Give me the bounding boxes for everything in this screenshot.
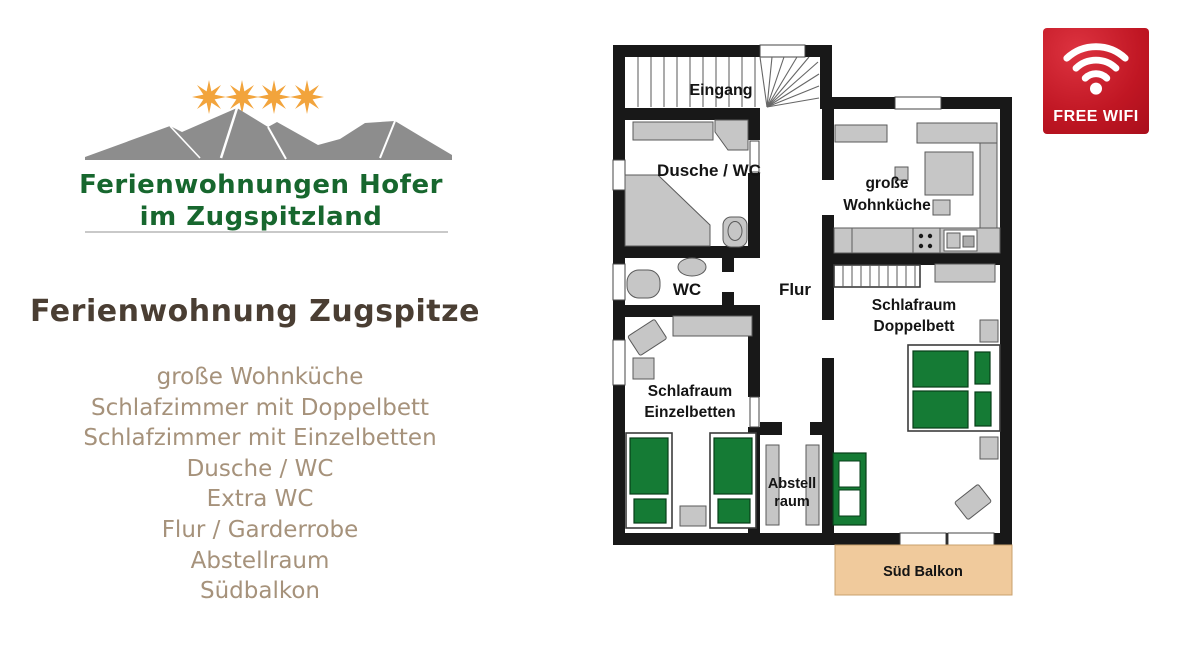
stove-burner <box>919 244 923 248</box>
room-label-flur: Flur <box>779 280 811 299</box>
feature-item: Dusche / WC <box>10 454 510 485</box>
pillow <box>975 352 990 384</box>
feature-item: Flur / Garderrobe <box>10 515 510 546</box>
room-label-einzelbetten-1: Schlafraum <box>648 383 732 400</box>
sofa-cushion <box>839 461 860 487</box>
room-label-einzelbetten-2: Einzelbetten <box>644 404 735 421</box>
sideboard <box>835 125 887 142</box>
bath-window <box>613 160 625 190</box>
mattress <box>913 351 968 387</box>
bathroom-fixtures <box>625 120 748 247</box>
feature-item: Schlafzimmer mit Doppelbett <box>10 393 510 424</box>
stove-burner <box>928 234 932 238</box>
wifi-icon <box>1056 37 1136 101</box>
mattress <box>630 438 668 494</box>
page-title: Ferienwohnung Zugspitze <box>10 294 500 329</box>
sink <box>627 270 660 298</box>
wc-window <box>613 264 625 300</box>
mountains-icon <box>80 104 455 168</box>
nightstand <box>680 506 706 526</box>
room-label-kueche-1: große <box>865 175 908 192</box>
chair <box>954 484 991 520</box>
feature-item: Abstellraum <box>10 546 510 577</box>
cabinet <box>935 264 995 282</box>
balcony-door <box>900 533 946 545</box>
table <box>925 152 973 195</box>
room-label-eingang: Eingang <box>689 82 752 99</box>
wardrobe <box>834 265 920 287</box>
logo-line2: im Zugspitzland <box>75 202 447 232</box>
kitchen-window <box>895 97 941 109</box>
sofa-cushion <box>839 490 860 516</box>
pillow <box>975 392 991 426</box>
pillow <box>634 499 666 523</box>
mattress <box>714 438 752 494</box>
balcony-door <box>948 533 994 545</box>
feature-item: Schlafzimmer mit Einzelbetten <box>10 423 510 454</box>
room-label-dusche-wc: Dusche / WC <box>657 161 761 180</box>
dresser <box>673 316 752 336</box>
bedroom-window <box>613 340 625 385</box>
bench <box>917 123 997 143</box>
logo-line1: Ferienwohnungen Hofer <box>75 170 447 200</box>
feature-list: große Wohnküche Schlafzimmer mit Doppelb… <box>10 362 510 607</box>
single-bedroom-fixtures <box>626 316 756 528</box>
room-label-kueche-2: Wohnküche <box>843 197 931 214</box>
mattress <box>913 391 968 428</box>
shower <box>625 175 710 246</box>
stove-burner <box>928 244 932 248</box>
room-label-balkon: Süd Balkon <box>883 564 963 580</box>
feature-item: große Wohnküche <box>10 362 510 393</box>
room-label-abstellraum-1: Abstell <box>768 476 816 492</box>
door-leaf <box>750 397 759 427</box>
bath-counter <box>633 122 713 140</box>
logo-divider <box>85 231 448 233</box>
stool <box>933 200 950 215</box>
pillow <box>718 499 750 523</box>
feature-item: Südbalkon <box>10 576 510 607</box>
feature-item: Extra WC <box>10 484 510 515</box>
toilet <box>678 258 706 276</box>
room-label-doppelbett-2: Doppelbett <box>874 318 955 335</box>
wifi-label: FREE WIFI <box>1053 108 1138 126</box>
floorplan: Eingang Dusche / WC große Wohnküche WC F… <box>610 40 1020 600</box>
room-label-abstellraum-2: raum <box>774 494 809 510</box>
chair <box>628 319 667 356</box>
toilet-bowl <box>728 222 742 241</box>
nightstand <box>980 320 998 342</box>
cabinet <box>633 358 654 379</box>
sink-basin <box>947 233 960 248</box>
free-wifi-badge: FREE WIFI <box>1043 28 1149 134</box>
entrance-door <box>760 45 805 57</box>
kitchen-fixtures <box>834 123 1000 253</box>
stove-burner <box>919 234 923 238</box>
room-label-wc: WC <box>673 280 701 299</box>
corner-cabinet <box>715 120 748 150</box>
sink-basin <box>963 236 974 247</box>
nightstand <box>980 437 998 459</box>
room-label-doppelbett-1: Schlafraum <box>872 297 956 314</box>
